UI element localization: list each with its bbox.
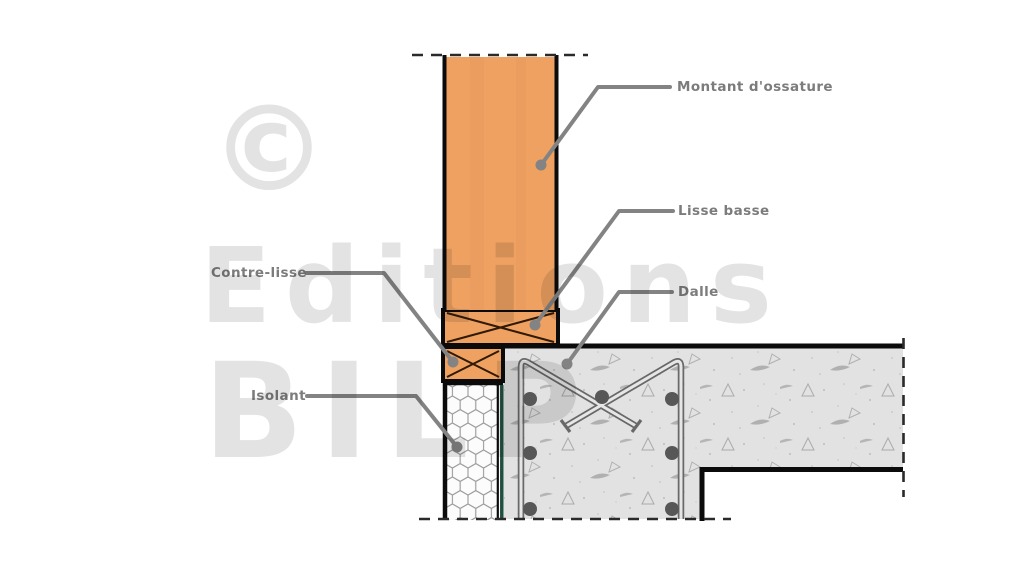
insulation-panel <box>443 381 503 520</box>
label-contre-lisse: Contre-lisse <box>211 265 307 281</box>
label-dalle: Dalle <box>678 284 719 300</box>
wall-stud <box>445 55 557 311</box>
leader-contre-lisse <box>306 273 453 362</box>
leader-montant <box>541 87 670 165</box>
detail-drawing-canvas <box>0 0 1024 576</box>
label-montant-ossature: Montant d'ossature <box>677 79 833 95</box>
label-isolant: Isolant <box>251 388 306 404</box>
construction-detail-drawing: Montant d'ossature Lisse basse Contre-li… <box>0 0 1024 576</box>
leader-isolant <box>307 396 457 447</box>
label-lisse-basse: Lisse basse <box>678 203 770 219</box>
